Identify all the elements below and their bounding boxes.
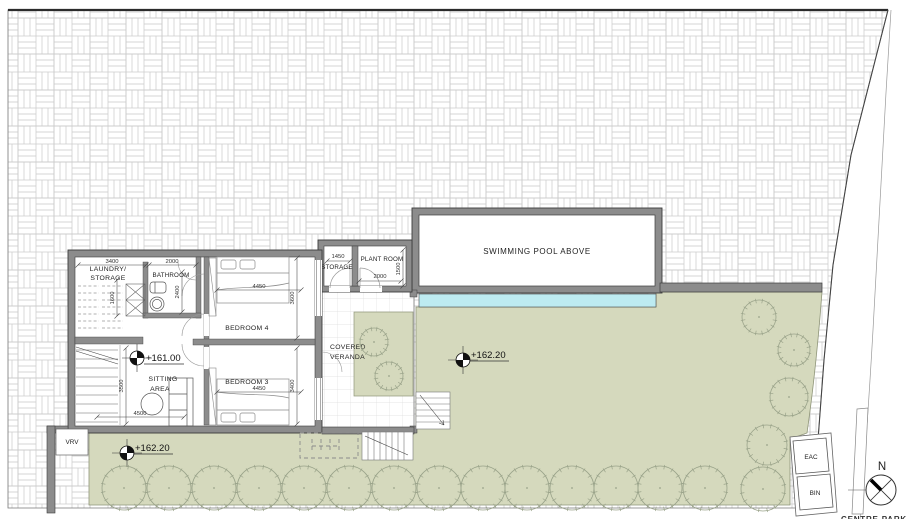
veranda-label-2: VERANDA [330,354,365,361]
garden-stairs-east [416,392,450,429]
bin-label: BIN [810,490,821,497]
bedroom3-label: BEDROOM 3 [225,379,269,386]
vrv-unit: VRV [56,429,88,455]
dim-sitting-w: 4500 [133,411,147,417]
sitting-label-2: AREA [150,386,170,393]
plant-room-label: PLANT ROOM [361,256,404,263]
storage-plant-block: STORAGE PLANT ROOM 1450 2000 1500 [318,240,412,292]
bathroom-label: BATHROOM [153,272,190,279]
pool-side-wall [660,283,822,292]
level-value-upper: +161.00 [146,353,181,364]
dim-storage-w: 1450 [331,254,345,260]
pool-label: SWIMMING POOL ABOVE [483,247,591,256]
toilet [150,282,166,293]
level-value-lower-garden: +162.20 [135,443,170,454]
dim-laundry-w: 3400 [105,259,119,265]
bed-bedroom4 [217,257,289,303]
bottom-caption: CENTRE PARK [841,515,907,519]
dim-bathroom-h: 2400 [175,285,181,299]
garden-stairs-south [362,432,413,460]
dim-plant-w: 2000 [373,274,387,280]
pool-water-edge [419,294,656,307]
vrv-label: VRV [65,439,79,446]
laundry-label-1: LAUNDRY/ [90,266,127,273]
level-value-garden: +162.20 [471,350,506,361]
covered-veranda: COVERED VERANDA [322,290,417,433]
dim-plant-h: 1500 [396,262,402,276]
eac-label: EAC [804,454,818,461]
north-letter: N [878,461,886,473]
kerb-strip [852,408,868,514]
sitting-label-1: SITTING [149,376,178,383]
dim-laundry-d: 1600 [110,291,116,305]
site-plan: SWIMMING POOL ABOVE COVERED VERANDA STOR… [0,0,910,519]
dim-bedroom3-w: 4450 [252,386,266,392]
main-building: LAUNDRY/ STORAGE BATHROOM BEDROOM 4 BEDR… [68,250,342,433]
laundry-label-2: STORAGE [90,275,125,282]
bedroom4-label: BEDROOM 4 [225,325,269,332]
service-boxes: EAC BIN [790,433,837,516]
dim-bedroom3-h: 3400 [290,379,296,393]
dim-sitting-h: 3500 [119,379,125,393]
storage-label: STORAGE [321,264,353,271]
dim-bedroom4-h: 3600 [290,291,296,305]
plan-drawing: SWIMMING POOL ABOVE COVERED VERANDA STOR… [0,0,910,519]
dim-bathroom-w: 2000 [165,259,179,265]
dim-bedroom4-w: 4450 [252,284,266,290]
